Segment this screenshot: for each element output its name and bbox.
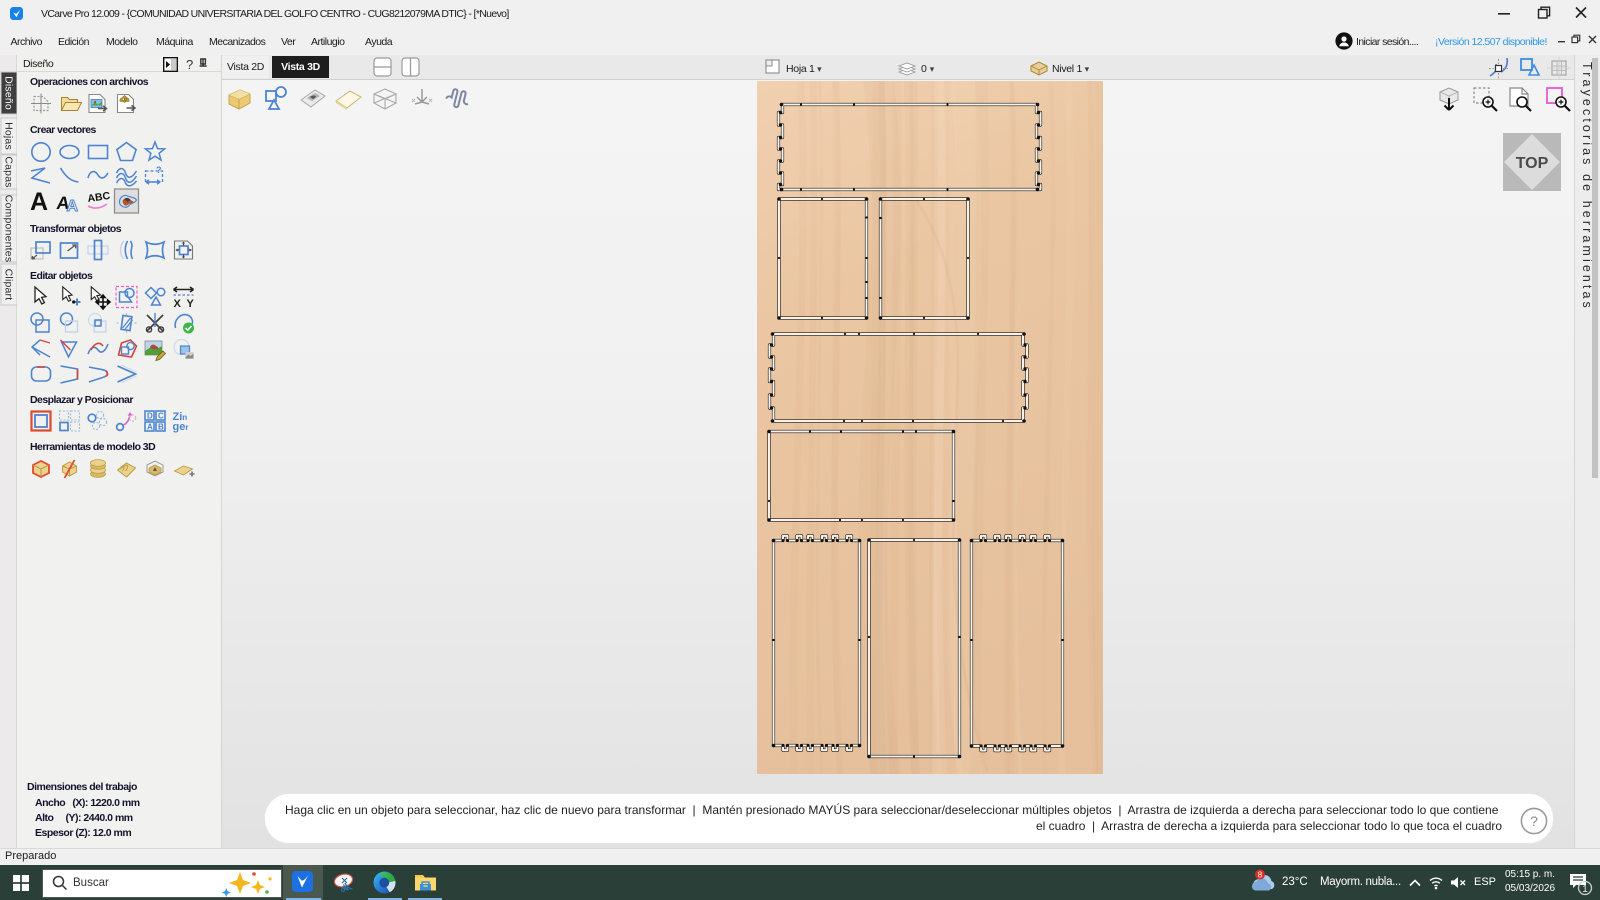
svg-text:A: A bbox=[147, 423, 153, 432]
svg-text:Y: Y bbox=[187, 298, 195, 310]
svg-text:A: A bbox=[67, 198, 79, 215]
svg-text:Componentes: Componentes bbox=[3, 195, 15, 263]
svg-text:?: ? bbox=[1530, 813, 1538, 829]
svg-text:A: A bbox=[30, 188, 48, 216]
svg-text:8: 8 bbox=[1258, 871, 1263, 880]
svg-text:C: C bbox=[158, 412, 164, 421]
svg-text:ABC: ABC bbox=[87, 190, 112, 205]
svg-text:ger: ger bbox=[173, 421, 189, 433]
svg-text:1: 1 bbox=[1582, 884, 1588, 895]
svg-text:?: ? bbox=[156, 165, 162, 175]
svg-text:D: D bbox=[147, 412, 153, 421]
svg-text:B: B bbox=[158, 423, 164, 432]
svg-text:TOP: TOP bbox=[1516, 155, 1549, 172]
svg-text:X: X bbox=[174, 298, 182, 310]
svg-text:Clipart: Clipart bbox=[3, 269, 15, 301]
svg-text:Capas: Capas bbox=[3, 156, 15, 187]
